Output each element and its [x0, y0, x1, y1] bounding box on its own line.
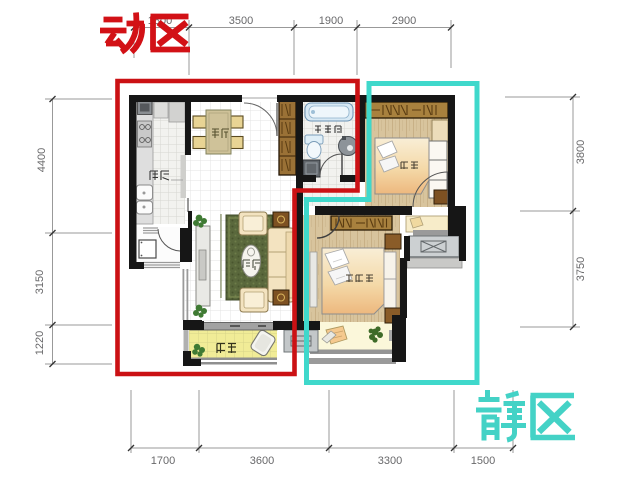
svg-text:2900: 2900	[392, 15, 416, 27]
svg-text:3600: 3600	[250, 455, 274, 467]
svg-text:3800: 3800	[575, 140, 587, 164]
svg-text:1500: 1500	[471, 455, 495, 467]
svg-text:3500: 3500	[229, 15, 253, 27]
svg-text:1900: 1900	[319, 15, 343, 27]
svg-text:4400: 4400	[36, 148, 48, 172]
svg-text:3150: 3150	[34, 270, 46, 294]
svg-text:3300: 3300	[378, 455, 402, 467]
svg-text:3750: 3750	[575, 257, 587, 281]
svg-text:1700: 1700	[151, 455, 175, 467]
svg-text:1220: 1220	[34, 331, 46, 355]
